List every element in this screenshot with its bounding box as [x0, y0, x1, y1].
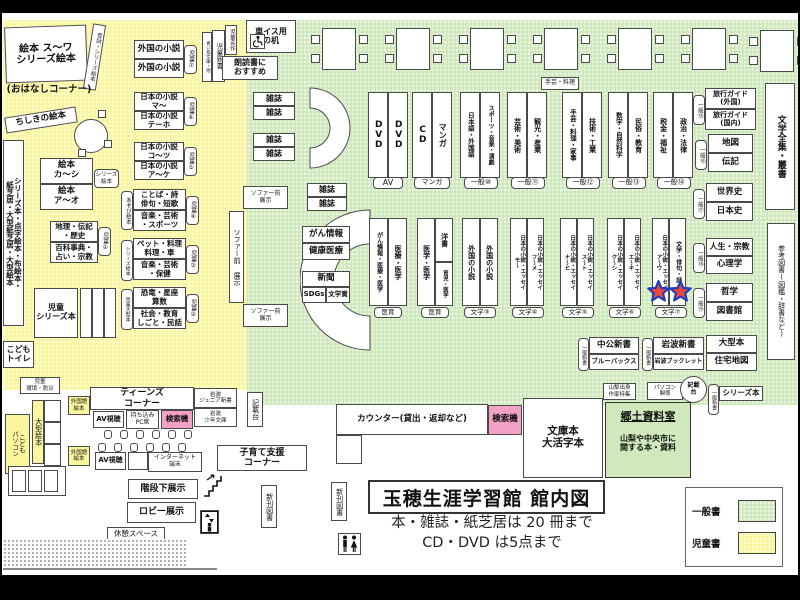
reading-table	[396, 28, 430, 70]
shelf-small-3	[44, 444, 61, 466]
gaikokugo-ehon-1: 外国語 絵本	[68, 396, 90, 415]
ogata-bon: 大型本	[706, 335, 757, 353]
iwanami-shonen: 岩波 少年文庫	[194, 408, 237, 427]
bluebacks: ブルーバックス	[589, 354, 639, 370]
counter-leg	[336, 435, 362, 464]
shelf-jp-essay-na-hi: 日本の小説・エッセイ ナ〜ヒ	[560, 218, 577, 306]
slat-2	[92, 288, 104, 338]
bungaku-zenshu-strip: 文学全集・叢書	[765, 83, 795, 210]
chair	[385, 54, 394, 63]
shelf-ehon-a-o: 絵本 ア〜オ	[40, 184, 93, 210]
story-corner-label: (おはなしコーナー)	[4, 84, 94, 97]
shelf-foreign-novel-r: 外国の小説	[480, 218, 498, 306]
chair	[359, 54, 368, 63]
travel-guide-foreign: 旅行ガイド (外国)	[705, 88, 756, 109]
series-bon: シリーズ本	[719, 386, 763, 401]
letterbox-left	[0, 0, 2, 600]
shelf-medical-2: 医学・医学	[417, 218, 435, 306]
ippan13-tag: 一般⑬	[612, 177, 646, 189]
shelf-encyclopedia: 百科事典・ 占い・宗教	[50, 242, 98, 263]
shelf-tax-welfare: 税金・福祉	[653, 92, 673, 178]
bench-seat-2	[28, 470, 42, 492]
cancer-info: がん情報	[302, 226, 350, 243]
shelf-small-1	[44, 400, 61, 422]
asobi-ehon-tag: あそび絵本	[121, 191, 133, 230]
ippan12-tag: 一般⑫	[566, 177, 600, 189]
series-ehon-tag: シリーズ 絵本	[94, 169, 119, 188]
av-shicho-2: AV視聴	[95, 452, 126, 470]
rest-area	[3, 539, 188, 569]
shelf-childcare-medical: 育児・医学	[435, 262, 453, 306]
letterbox-top	[0, 0, 800, 13]
slat-1	[80, 288, 92, 338]
chair	[681, 35, 690, 44]
reading-table	[544, 28, 578, 70]
search-machine-teens: 検索機	[161, 410, 193, 429]
travel-guide-domestic: 旅行ガイド (国内)	[705, 109, 756, 130]
shelf-jpn-foreign-lang: 日本語・外国語	[460, 92, 480, 178]
chair	[749, 56, 758, 65]
bungaku6-tag: 文学⑥	[609, 307, 641, 318]
aoitori-strip: 青い鳥文庫・他	[202, 32, 212, 82]
shelf-society-edu: 社会・教育 しごと・民話	[133, 308, 186, 329]
mag-1a: 雑誌	[253, 92, 295, 106]
jido6-tag: 児童⑥	[184, 97, 197, 126]
chair	[533, 54, 542, 63]
lobby-display: ロビー展示	[127, 502, 196, 523]
kisaidai-circle: 記載 台	[680, 376, 707, 403]
jutaku-chizu: 住宅地図	[706, 353, 757, 371]
shelf-maps: 地図	[708, 134, 753, 153]
kyodo-desc: 山梨や中央市に 関する本・資料	[607, 430, 689, 458]
chair	[581, 35, 590, 44]
stool	[184, 430, 192, 439]
shelf-world-history: 世界史	[706, 183, 753, 202]
shinkan-tosho-2: 新刊図書	[331, 482, 347, 521]
shelf-small-2	[44, 422, 61, 444]
legend-label-general: 一般書	[692, 504, 721, 518]
ippan-shinsho-tag-2: 一般新書	[642, 338, 653, 371]
shelf-japan-history: 日本史	[706, 202, 753, 221]
ippan18-tag: 一般⑱	[693, 243, 705, 273]
series-ehon-tag-2: シリーズ絵本	[121, 240, 133, 281]
av-tag: AV	[373, 177, 403, 189]
bench-seat-3	[44, 470, 58, 492]
legend: 一般書 児童書	[685, 487, 783, 567]
chuko-shinsho: 中公新書	[589, 337, 639, 354]
mochikomi-pc: 持ち込み PC席	[126, 410, 159, 429]
shelf-art: 芸術・美術	[507, 92, 527, 178]
chair	[311, 35, 320, 44]
page-title: 玉穂生涯学習館 館内図	[368, 480, 605, 514]
iwanami-shinsho: 岩波新書	[653, 337, 704, 354]
legend-swatch-general	[738, 500, 776, 522]
jido-kankyo-bosai: 児童 環境・防災	[20, 377, 60, 394]
shelf-sports-music-drama: スポーツ・音楽・演劇	[480, 92, 500, 178]
ippan10-tag: 一般⑩	[464, 177, 498, 189]
ippan11-tag: 一般⑪	[511, 177, 545, 189]
chair	[98, 110, 106, 118]
bungaku5-tag: 文学⑤	[562, 307, 594, 318]
ippan-shinsho-tag-3: 一般新書	[708, 384, 719, 415]
stool	[168, 430, 176, 439]
yamanashi-sakka: 山梨出身 作家特集	[603, 383, 636, 400]
ippan16-tag: 一般⑯	[695, 140, 707, 170]
legend-label-children: 児童書	[692, 536, 721, 550]
shelf-cd: CD	[412, 92, 432, 178]
chair	[433, 54, 442, 63]
health-medical: 健康医療	[302, 243, 350, 260]
stairs-icon	[202, 472, 224, 498]
reading-table	[470, 28, 504, 70]
shelf-tourism-industry: 観光・産業	[527, 92, 547, 178]
mag-2b: 雑誌	[253, 147, 295, 161]
shelf-politics-law: 政治・法律	[673, 92, 693, 178]
kamishibai-strip: シリーズ本・点字絵本・布絵本・ 紙芝居・大型紙芝居・大型絵本	[3, 140, 24, 326]
location-star-2	[669, 280, 692, 303]
stool	[146, 443, 154, 452]
kisaidai-stand: 記載台	[247, 392, 263, 427]
shelf-jp-novels-ma: 日本の小説 マ〜	[134, 92, 184, 111]
shelf-jp-essay-e-ki: 日本の小説・エッセイ エ〜キ	[624, 218, 641, 306]
loan-limit-books: 本・雑誌・紙芝居は 20 冊まで	[378, 512, 606, 530]
mag-3a: 雑誌	[307, 183, 347, 197]
sanko-tosho-strip: 参考図書(図鑑・辞書など)	[767, 223, 795, 360]
chair	[655, 54, 664, 63]
iiku-tag-1: 医育	[374, 307, 402, 318]
stool	[152, 430, 160, 439]
ippan-shinsho-tag-1: 一般新書	[578, 338, 589, 371]
round-table	[74, 119, 108, 153]
mag-3b: 雑誌	[307, 197, 347, 211]
shelf-folk-edu: 民俗・教育	[628, 92, 648, 178]
shelf-foreign-novels-kids-a: 外国の小説	[134, 40, 184, 59]
ippan15-tag: 一般⑮	[693, 95, 705, 125]
shelf-denki: 伝記	[708, 153, 753, 172]
iwanami-booklet: 岩波ブックレット	[653, 354, 704, 370]
reading-table	[760, 30, 794, 72]
chair	[749, 37, 758, 46]
shelf-library-science: 図書館	[706, 302, 753, 321]
internet-tanmatsu: インターネット 端末	[148, 452, 202, 472]
chair	[581, 54, 590, 63]
shelf-kotoba-poetry: ことば・詩 俳句・短歌	[133, 189, 186, 210]
shelf-music-art-health: 音楽・芸術 ・保健	[133, 259, 186, 280]
teens-corner: ティーンズ コーナー	[90, 387, 194, 410]
chair	[507, 35, 516, 44]
stool	[104, 430, 112, 439]
stool	[130, 443, 138, 452]
jido-meisaku-strip: 児童名作	[225, 25, 237, 55]
legend-row-general: 一般書	[692, 500, 776, 522]
chair	[359, 35, 368, 44]
av-shicho-1: AV視聴	[93, 411, 124, 428]
loan-limit-cd-dvd: CD・DVD は5点まで	[378, 532, 606, 550]
newspaper: 新聞	[302, 271, 350, 287]
shelf-dino-star-math: 恐竜・星座 算数	[133, 287, 186, 308]
sofa-crescent-top	[306, 86, 352, 170]
shelf-psychology: 心理学	[706, 256, 753, 274]
shelf-jp-essay-su-to: 日本の小説・エッセイ ス〜ト	[577, 218, 594, 306]
bungaku3-tag: 文学③	[464, 307, 496, 318]
elevator-icon	[200, 510, 219, 534]
chair	[104, 140, 112, 148]
bungaku4-tag: 文学④	[512, 307, 544, 318]
jido1-tag: 児童①	[98, 227, 111, 256]
shelf-jp-essay-fu-me: 日本の小説・エッセイ フ〜メ	[527, 218, 544, 306]
chair	[729, 35, 738, 44]
bungakusho: 文学賞	[326, 287, 350, 303]
shelf-jp-novels-ko-tsu: 日本の小説 コ〜ツ	[134, 142, 184, 161]
jido7-tag: 児童⑦	[184, 45, 197, 74]
shelf-foreign-novels-kids-b: 外国の小説	[134, 59, 184, 78]
shelf-jp-novels-a-ke: 日本の小説 ア〜ケ	[134, 161, 184, 180]
shelf-life-religion: 人生・宗教	[706, 238, 753, 256]
sdgs: SDGs	[302, 287, 326, 303]
shinkan-tosho-1: 新刊図書	[261, 485, 277, 528]
blank-box	[128, 452, 148, 470]
ogata-ehon: 大型絵本	[32, 400, 44, 464]
mag-1b: 雑誌	[253, 106, 295, 120]
sofa-display-side: ソファー前 展示	[229, 211, 244, 303]
search-machine-main: 検索機	[488, 405, 522, 435]
shelf-yosho: 洋書	[435, 218, 453, 262]
shelf-tech-industry: 技術・工業	[582, 92, 602, 178]
picture-books-su-wa: 絵本 ス〜ワ シリーズ絵本	[4, 25, 88, 84]
chair	[607, 35, 616, 44]
shelf-jp-novels-te-ho: 日本の小説 テーホ	[134, 111, 184, 130]
chair	[533, 35, 542, 44]
legend-row-children: 児童書	[692, 532, 776, 554]
kodomo-pasokon: こども パソコン	[5, 414, 30, 474]
pc-kankei: パソコン 関係	[647, 382, 683, 400]
jido-ogata-tag: 児童大型本	[121, 289, 133, 330]
kosodate-corner: 子育て支援 コーナー	[217, 445, 307, 471]
chair	[385, 35, 394, 44]
letterbox-bottom	[0, 575, 800, 600]
chair	[78, 149, 86, 157]
stool	[178, 443, 186, 452]
shelf-dvd-l: DVD	[368, 92, 388, 178]
ippan14-tag: 一般⑭	[657, 177, 691, 189]
legend-swatch-children	[738, 532, 776, 554]
kyodo-title: 郷土資料室	[607, 408, 689, 426]
bench-seat-1	[12, 470, 26, 492]
chair	[459, 35, 468, 44]
shelf-foreign-novel-l: 外国の小説	[462, 218, 480, 306]
kaidan-shita: 階段下展示	[128, 479, 198, 499]
chair	[459, 54, 468, 63]
wall-line	[3, 568, 217, 570]
library-floor-map: 玉穂生涯学習館 館内図 本・雑誌・紙芝居は 20 冊まで CD・DVD は5点ま…	[0, 0, 800, 600]
reading-table	[692, 28, 726, 70]
shelf-cancer-medical: がん情報・医療・医学	[369, 218, 388, 306]
chair	[681, 54, 690, 63]
location-star-1	[647, 280, 670, 303]
kids-toilet: こども トイレ	[3, 341, 34, 368]
shugei-sign: 手芸・料理	[541, 77, 579, 90]
toilet-icon	[338, 533, 361, 555]
stool	[120, 430, 128, 439]
stool	[98, 443, 106, 452]
shelf-jp-essay-ku-shi: 日本の小説・エッセイ ク〜シ	[607, 218, 624, 306]
shelf-geo-bio-history: 地理・伝記 ・歴史	[50, 221, 98, 242]
iiku-tag-2: 医育	[421, 307, 449, 318]
shelf-pet-cooking: ペット・料理 料理・車	[133, 238, 186, 259]
iwanami-junior: 岩波 ジュニア新書	[194, 388, 237, 408]
shelf-handicraft: 手芸・料理・家事	[562, 92, 582, 178]
ippan17-tag: 一般⑰	[693, 189, 705, 219]
shelf-medical-1: 医療・医学	[388, 218, 407, 306]
roudoku-osusume: 朗読書に おすすめ	[222, 56, 278, 80]
stool	[162, 443, 170, 452]
jido-series-box: 児童 シリーズ本	[34, 288, 78, 338]
ippan19-tag: 一般⑲	[693, 288, 705, 318]
mag-2a: 雑誌	[253, 133, 295, 147]
slat-3	[104, 288, 116, 338]
shelf-manga: マンガ	[432, 92, 452, 178]
shelf-ehon-ka-shi: 絵本 カ〜シ	[40, 158, 93, 184]
sofa-display-bottom: ソファー前 展示	[243, 304, 288, 327]
bungaku7-tag: 文学⑦	[655, 307, 687, 318]
stool	[114, 443, 122, 452]
shelf-music-art-sports: 音楽・芸術 ・スポーツ	[133, 210, 186, 231]
bunkobon: 文庫本 大活字本	[523, 398, 603, 478]
sofa-display-top: ソファー前 展示	[243, 186, 288, 209]
chair	[311, 54, 320, 63]
jido5-tag: 児童⑤	[184, 147, 197, 176]
shelf-jp-essay-mo: 日本の小説・エッセイ モ〜	[510, 218, 527, 306]
shelf-philosophy: 哲学	[706, 283, 753, 302]
shelf-math-science: 数学・自然科学	[608, 92, 628, 178]
manga-tag: マンガ	[414, 177, 450, 189]
wheelchair-icon	[250, 34, 265, 49]
reading-table	[322, 28, 356, 70]
jido2-tag: 児童②	[186, 294, 199, 323]
shelf-dvd-r: DVD	[388, 92, 408, 178]
jido4-tag: 児童④	[186, 196, 199, 225]
chair	[729, 54, 738, 63]
chair	[607, 54, 616, 63]
jido3-tag: 児童③	[186, 245, 199, 274]
gaikokugo-ehon-2: 外国語 絵本	[68, 446, 90, 466]
counter: カウンター(貸出・返却など)	[336, 404, 488, 435]
chair	[655, 35, 664, 44]
reading-table	[618, 28, 652, 70]
chair	[507, 54, 516, 63]
chair	[433, 35, 442, 44]
stool	[136, 430, 144, 439]
